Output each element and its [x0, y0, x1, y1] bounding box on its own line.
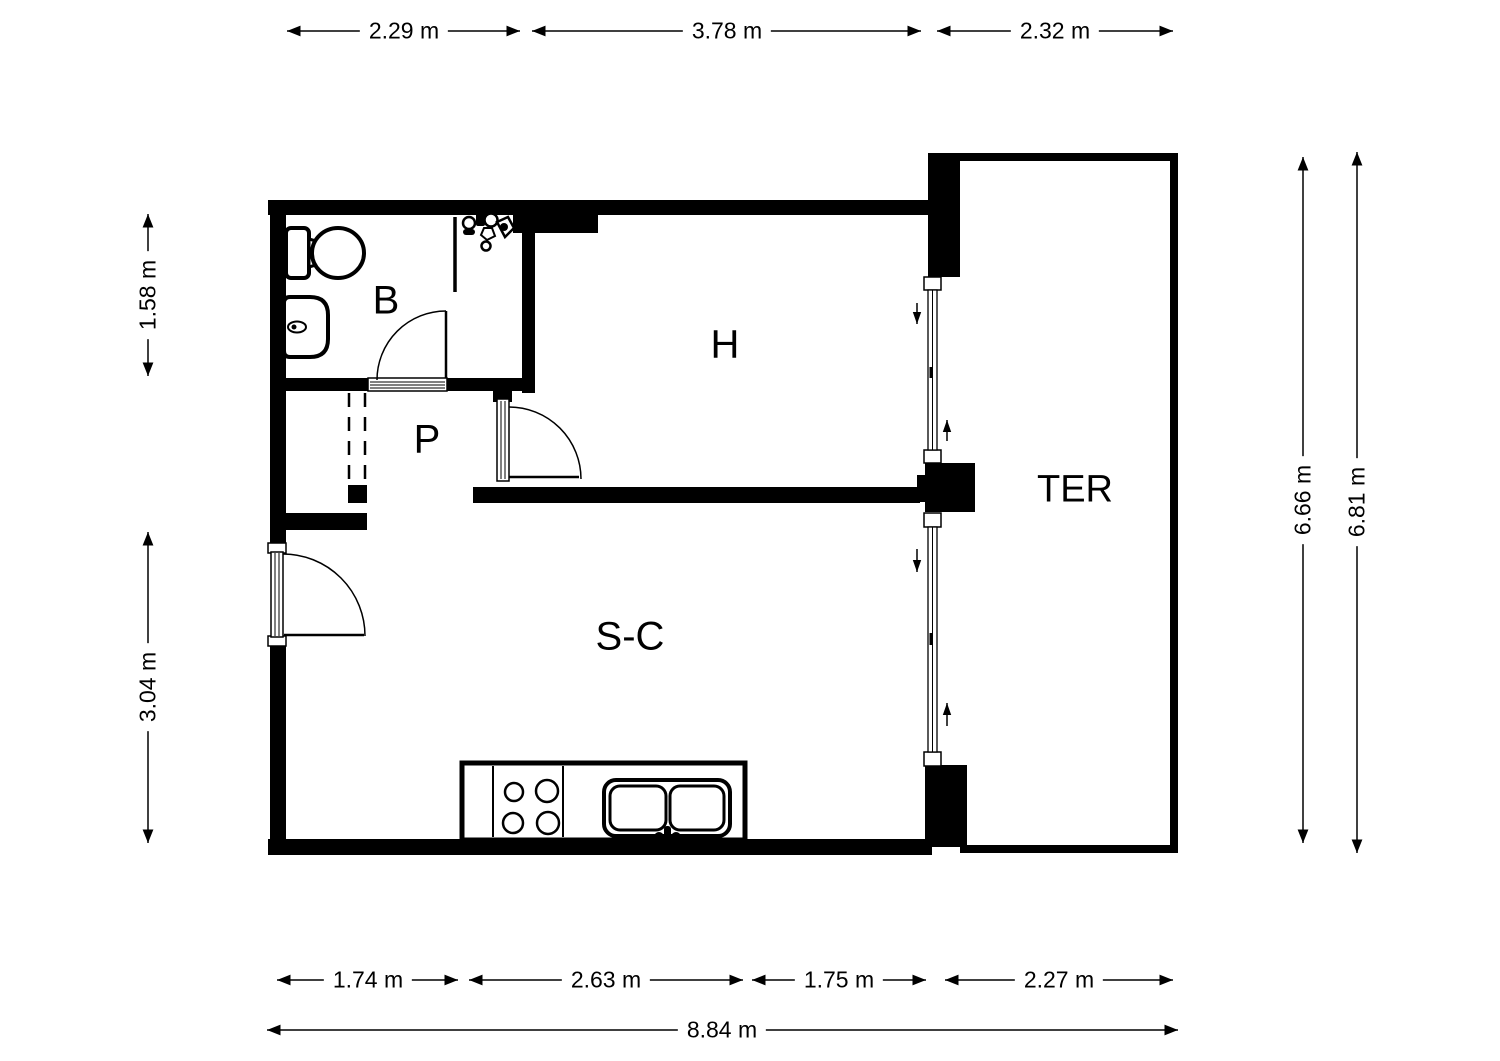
- entry-door: [268, 543, 365, 646]
- floor-plan-drawing: [0, 0, 1500, 1061]
- dim-label-overall: 8.84 m: [678, 1017, 766, 1042]
- wall-stub-p: [348, 485, 367, 503]
- dim-label-right-1: 6.66 m: [1290, 456, 1315, 544]
- wall-left-lower: [270, 645, 286, 855]
- kitchen-sink-icon: [604, 780, 730, 842]
- pillar-middle-right: [925, 463, 975, 512]
- open-passage-dashed: [349, 393, 365, 485]
- pillar-middle-arm: [917, 475, 927, 502]
- dim-label-bottom-1: 1.74 m: [324, 967, 412, 992]
- terrace-wall-bottom: [960, 845, 1178, 853]
- room-label-living-kitchen: S-C: [596, 615, 665, 660]
- wall-vestibule-bottom: [270, 513, 367, 530]
- pillar-bottom-right: [925, 765, 967, 847]
- wall-bath-bottom-left: [270, 378, 368, 391]
- wall-bath-bottom-right: [447, 378, 535, 391]
- dim-label-bottom-4: 2.27 m: [1015, 967, 1103, 992]
- room-label-terrace: TER: [1037, 469, 1113, 512]
- room-label-hall: P: [414, 418, 441, 463]
- dim-label-left-2: 3.04 m: [135, 643, 160, 731]
- terrace-wall-top: [930, 153, 1178, 161]
- wall-top: [268, 200, 930, 215]
- wall-left-upper: [270, 200, 286, 545]
- bedroom-door: [497, 399, 581, 481]
- room-label-bedroom: H: [711, 323, 740, 368]
- sliding-door-bedroom: [924, 277, 941, 463]
- dim-label-top-3: 2.32 m: [1011, 18, 1099, 43]
- sink-icon: [284, 297, 328, 357]
- dim-label-top-2: 3.78 m: [683, 18, 771, 43]
- terrace-wall-right: [1170, 153, 1178, 853]
- wall-h-bottom: [473, 487, 920, 503]
- dim-label-top-1: 2.29 m: [360, 18, 448, 43]
- dim-label-bottom-2: 2.63 m: [562, 967, 650, 992]
- room-label-bathroom: B: [373, 279, 400, 324]
- shower-icon: [455, 213, 514, 292]
- dim-label-right-2: 6.81 m: [1344, 458, 1369, 546]
- dim-label-bottom-3: 1.75 m: [795, 967, 883, 992]
- dim-label-left-1: 1.58 m: [135, 251, 160, 339]
- toilet-icon: [286, 228, 364, 278]
- floor-plan-canvas: 2.29 m 3.78 m 2.32 m 1.58 m 3.04 m 6.66 …: [0, 0, 1500, 1061]
- shower-drain: [482, 242, 491, 251]
- sliding-door-living: [924, 513, 941, 766]
- wall-shower-right: [522, 213, 535, 393]
- pillar-top-right: [928, 153, 960, 277]
